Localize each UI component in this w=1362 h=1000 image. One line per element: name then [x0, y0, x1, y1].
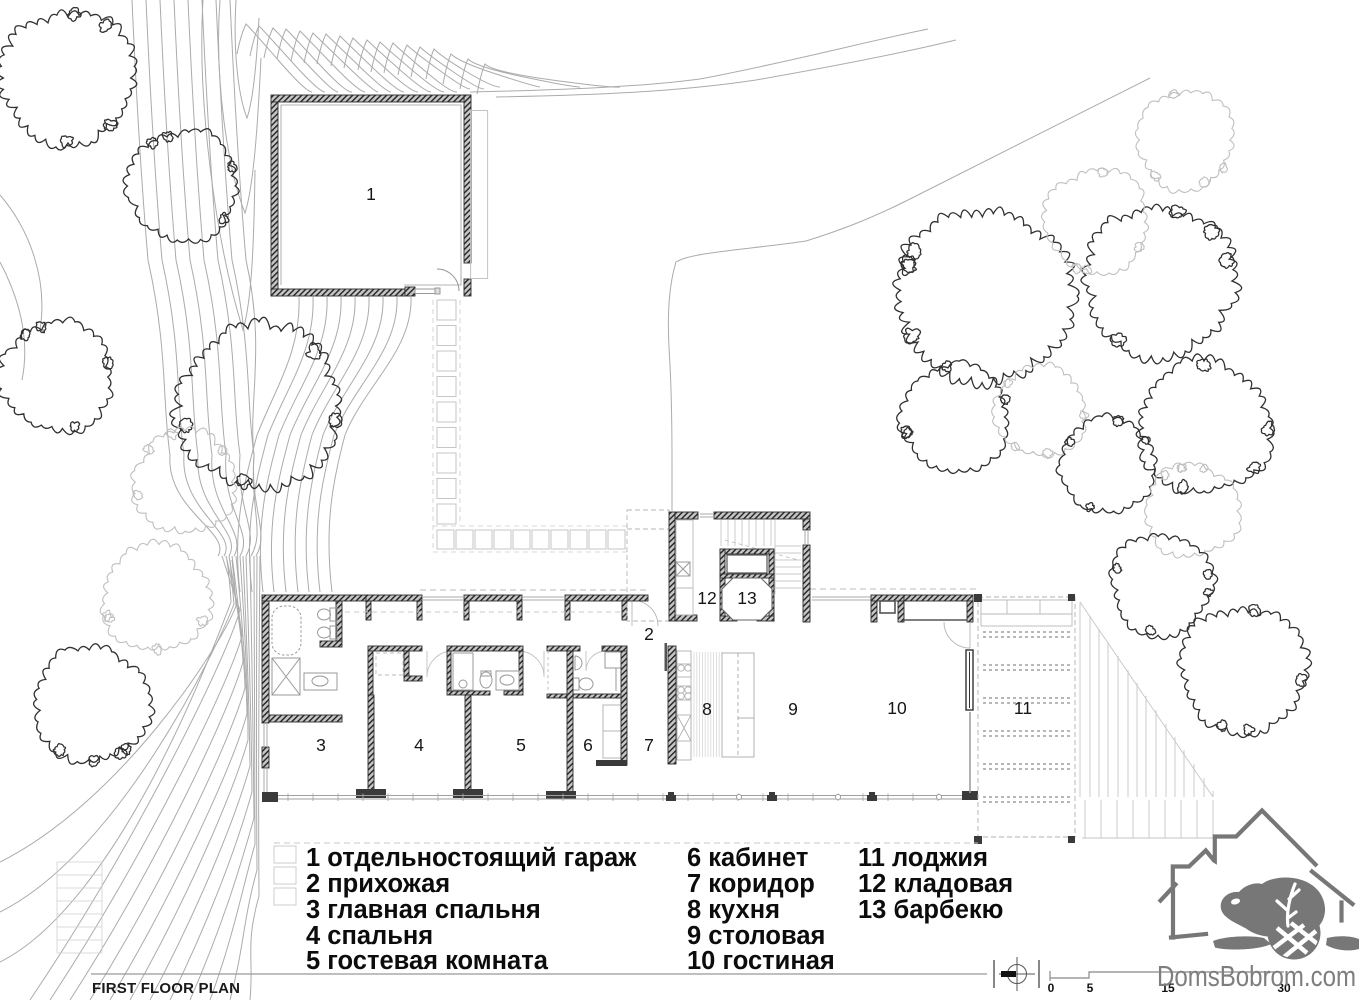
svg-text:DomsBobrom.com: DomsBobrom.com [1157, 961, 1356, 993]
svg-text:13 барбекю: 13 барбекю [858, 896, 1003, 924]
svg-text:1: 1 [366, 184, 376, 204]
svg-text:11: 11 [1014, 698, 1032, 718]
svg-text:10 гостиная: 10 гостиная [687, 947, 835, 975]
svg-text:0: 0 [1048, 981, 1055, 995]
svg-text:9: 9 [788, 699, 798, 719]
svg-text:2 прихожая: 2 прихожая [306, 870, 450, 898]
svg-text:7 коридор: 7 коридор [687, 870, 815, 898]
svg-text:1 отдельностоящий гараж: 1 отдельностоящий гараж [306, 844, 637, 872]
svg-text:FIRST FLOOR PLAN: FIRST FLOOR PLAN [92, 980, 240, 997]
svg-text:10: 10 [887, 698, 907, 718]
svg-text:9 столовая: 9 столовая [687, 922, 825, 950]
svg-text:5: 5 [516, 735, 526, 755]
svg-text:4 спальня: 4 спальня [306, 922, 433, 950]
svg-text:13: 13 [737, 588, 756, 608]
svg-text:6: 6 [583, 735, 593, 755]
svg-text:6 кабинет: 6 кабинет [687, 844, 808, 872]
svg-text:3 главная спальня: 3 главная спальня [306, 896, 541, 924]
svg-text:8 кухня: 8 кухня [687, 896, 780, 924]
svg-text:7: 7 [644, 735, 654, 755]
svg-text:2: 2 [644, 624, 654, 644]
svg-text:8: 8 [702, 699, 712, 719]
svg-text:12 кладовая: 12 кладовая [858, 870, 1013, 898]
svg-text:3: 3 [316, 735, 326, 755]
svg-text:5: 5 [1087, 981, 1094, 995]
svg-text:5 гостевая комната: 5 гостевая комната [306, 947, 549, 975]
svg-text:11 лоджия: 11 лоджия [858, 844, 988, 872]
svg-text:4: 4 [414, 735, 424, 755]
svg-text:12: 12 [697, 588, 716, 608]
